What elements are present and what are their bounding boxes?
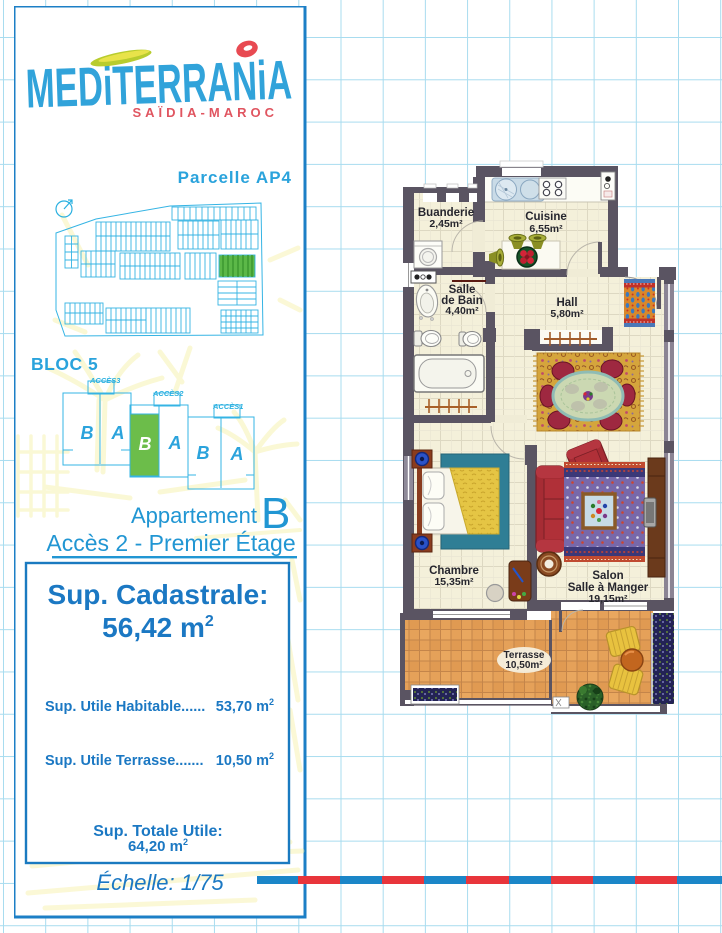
svg-text:19,15m²: 19,15m² [588, 593, 628, 605]
svg-text:6,55m²: 6,55m² [529, 223, 563, 235]
svg-text:4,40m²: 4,40m² [445, 305, 479, 317]
svg-text:5,80m²: 5,80m² [550, 308, 584, 320]
svg-text:10,50m²: 10,50m² [505, 660, 543, 671]
svg-text:15,35m²: 15,35m² [434, 576, 474, 588]
svg-text:Cuisine: Cuisine [525, 211, 567, 223]
svg-text:Salon: Salon [592, 570, 623, 582]
svg-text:2,45m²: 2,45m² [429, 218, 463, 230]
